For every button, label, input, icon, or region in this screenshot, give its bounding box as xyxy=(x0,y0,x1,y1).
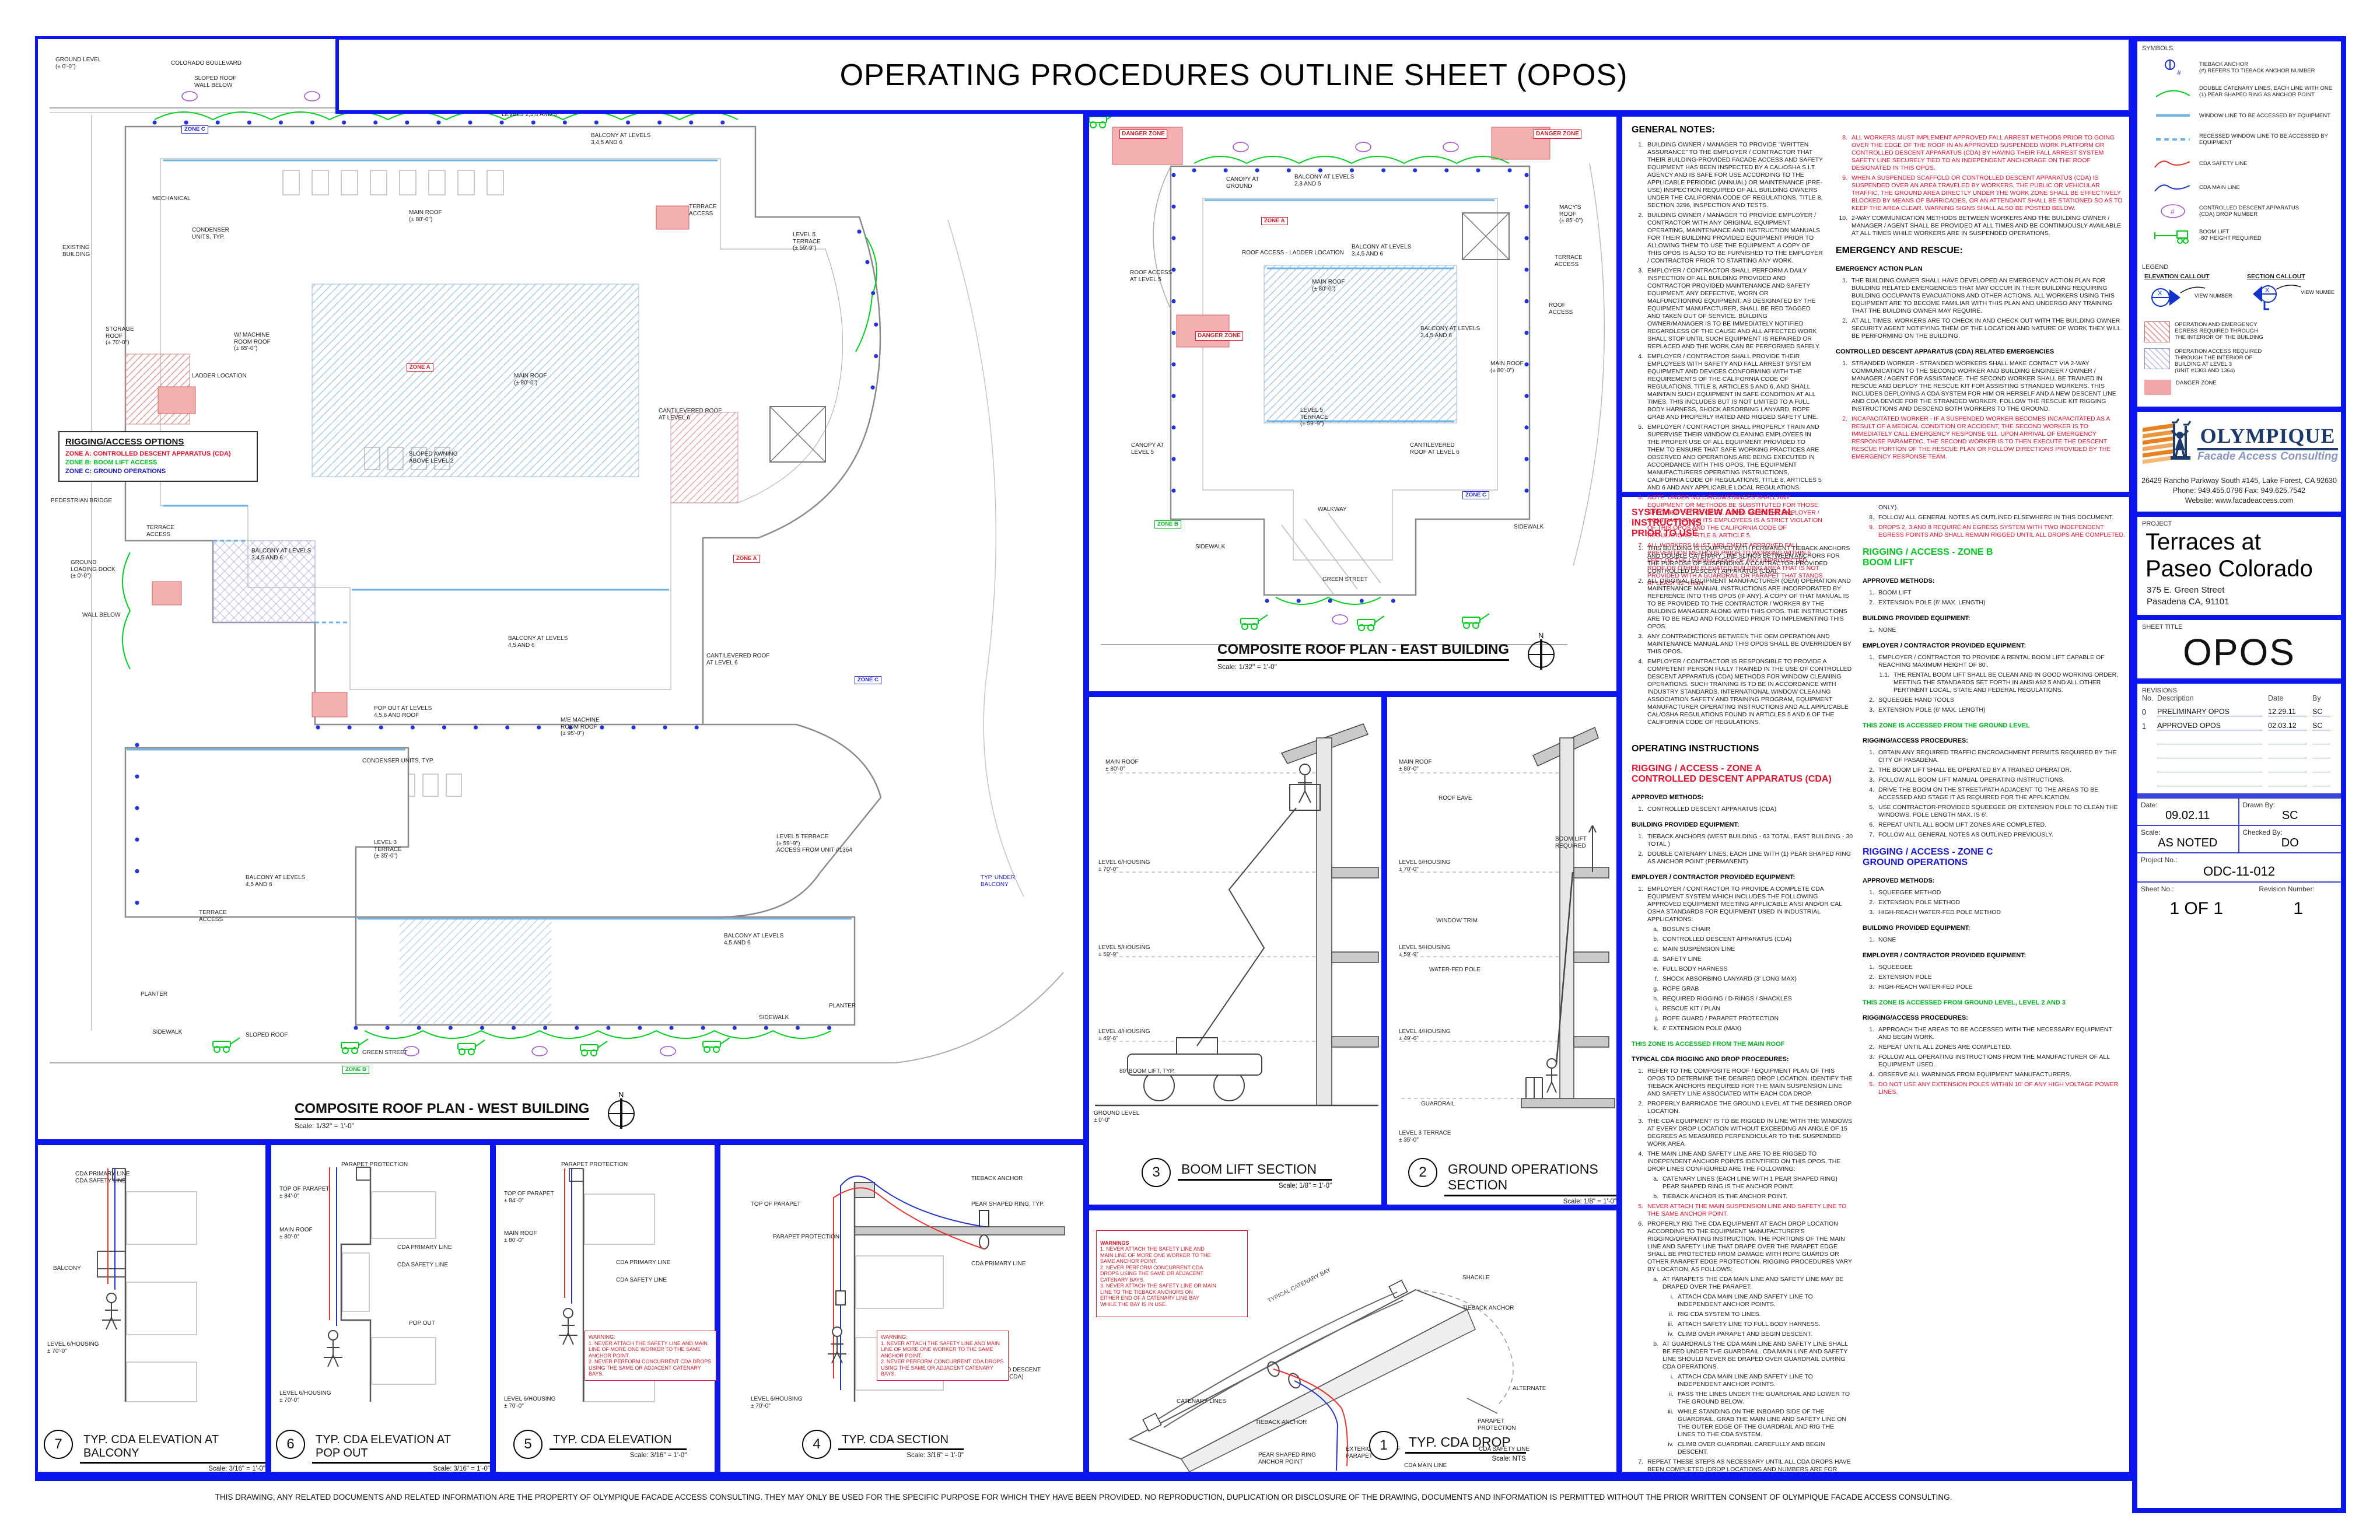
revision-no: 1 xyxy=(2142,722,2157,730)
plan-label: TIEBACK ANCHOR xyxy=(1462,1305,1514,1312)
svg-text:VIEW NUMBER: VIEW NUMBER xyxy=(2301,289,2334,295)
zone-c-approved-list: 1.SQUEEGEE METHOD2.EXTENSION POLE METHOD… xyxy=(1863,887,2126,919)
sidebar-divider xyxy=(2137,678,2341,684)
icon-red-hatch-icon xyxy=(2144,321,2170,342)
note-item: 1.THE BUILDING OWNER SHALL HAVE DEVELOPE… xyxy=(1836,277,2125,315)
emergency-action-list: 1.THE BUILDING OWNER SHALL HAVE DEVELOPE… xyxy=(1836,275,2125,342)
revision-no: 0 xyxy=(2142,708,2157,716)
note-item: ii.RIG CDA SYSTEM TO LINES. xyxy=(1662,1311,1853,1318)
plan-label: MAIN ROOF (± 80'-0") xyxy=(409,209,442,223)
plan-label: SLOPED AWNING ABOVE LEVEL 2 xyxy=(409,451,458,464)
zone-b-building-list: 1.NONE xyxy=(1863,624,2126,636)
plan-label: ROOF EAVE xyxy=(1438,795,1472,802)
typ-cda-elevation-panel: PARAPET PROTECTIONTOP OF PARAPET ± 84'-0… xyxy=(493,1142,717,1475)
revision-row: 0PRELIMINARY OPOS12.29.11SC xyxy=(2137,702,2341,716)
note-item: 2.DOUBLE CATENARY LINES, EACH LINE WITH … xyxy=(1632,850,1853,866)
title-block-sidebar: SYMBOLS #TIEBACK ANCHOR (#) REFERS TO TI… xyxy=(2132,36,2346,1513)
note-item: 3.HIGH-REACH WATER-FED POLE xyxy=(1863,984,2126,991)
checked-by-label: Checked By: xyxy=(2243,828,2283,836)
olympique-logo-icon xyxy=(2140,415,2194,471)
rev-col-date: Date xyxy=(2268,694,2306,702)
note-item: 1.EMPLOYER / CONTRACTOR TO PROVIDE A REN… xyxy=(1863,654,2126,669)
note-item: 1.SQUEEGEE xyxy=(1863,964,2126,971)
note-item: 3.THE CDA EQUIPMENT IS TO BE RIGGED IN L… xyxy=(1632,1118,1853,1148)
checked-by-value: DO xyxy=(2243,836,2338,850)
project-address-1: 375 E. Green Street xyxy=(2147,584,2341,596)
note-item: 1.EMPLOYER / CONTRACTOR TO PROVIDE A COM… xyxy=(1632,885,1853,923)
drawn-by-value: SC xyxy=(2243,809,2338,822)
east-roof-plan-drawing xyxy=(1089,117,1616,691)
note-item: 1.STRANDED WORKER - STRANDED WORKERS SHA… xyxy=(1836,360,2125,413)
note-item: b.TIEBACK ANCHOR IS THE ANCHOR POINT. xyxy=(1647,1193,1853,1200)
plan-label: LEVEL 6/HOUSING ± 70'-0" xyxy=(504,1396,556,1409)
symbol-row: RECESSED WINDOW LINE TO BE ACCESSED BY E… xyxy=(2152,129,2337,149)
note-item: f.SHOCK ABSORBING LANYARD (3' LONG MAX) xyxy=(1647,975,1853,983)
elevation-callout-group: ELEVATION CALLOUT X VIEW NUMBER xyxy=(2144,273,2232,316)
east-roof-plan-panel: DANGER ZONEDANGER ZONECANOPY AT GROUNDBA… xyxy=(1086,114,1619,694)
plan-label: LEVEL 6/HOUSING ± 70'-0" xyxy=(279,1390,331,1403)
note-item: 8.FOLLOW ALL GENERAL NOTES AS OUTLINED E… xyxy=(1863,514,2126,521)
plan-label: TIEBACK ANCHOR xyxy=(1255,1419,1307,1426)
rigging-access-options-box: RIGGING/ACCESS OPTIONS ZONE A: CONTROLLE… xyxy=(58,431,258,482)
cda-elevation-balcony-drawing xyxy=(38,1145,265,1419)
date-value: 09.02.11 xyxy=(2141,809,2235,822)
plan-label: ZONE A xyxy=(733,555,760,563)
symbol-label: CDA MAIN LINE xyxy=(2199,184,2240,191)
plan-label: LEVEL 4/HOUSING ± 49'-6" xyxy=(1098,1028,1150,1042)
legend-items: OPERATION AND EMERGENCY EGRESS REQUIRED … xyxy=(2144,321,2336,395)
zone-b-heading: RIGGING / ACCESS - ZONE B BOOM LIFT xyxy=(1863,547,2126,568)
boom-lift-icon xyxy=(2152,225,2193,245)
company-address: 26429 Rancho Parkway South #145, Lake Fo… xyxy=(2137,476,2341,486)
note-item: 9.WHEN A SUSPENDED SCAFFOLD OR CONTROLLE… xyxy=(1836,174,2125,212)
note-item: 2.REPEAT UNTIL ALL ZONES ARE COMPLETED. xyxy=(1863,1044,2126,1051)
plan-label: LEVEL 3 TERRACE ± 35'-0" xyxy=(1399,1130,1451,1143)
plan-label: LADDER LOCATION xyxy=(192,373,247,380)
plan-title-text: COMPOSITE ROOF PLAN - EAST BUILDING xyxy=(1217,642,1509,661)
view-number: 3 xyxy=(1142,1158,1171,1187)
system-overview-cont-list: ONLY).8.FOLLOW ALL GENERAL NOTES AS OUTL… xyxy=(1863,502,2126,541)
plan-label: CONDENSER UNITS, TYP. xyxy=(362,758,434,765)
system-overview-heading: SYSTEM OVERVIEW AND GENERAL INSTRUCTIONS… xyxy=(1632,508,1853,539)
project-no-value: ODC-11-012 xyxy=(2141,864,2337,879)
plan-label: TERRACE ACCESS xyxy=(689,204,717,217)
plan-label: BALCONY AT LEVELS 2,3 AND 5 xyxy=(1294,174,1354,187)
plan-label: 80' BOOM LIFT, TYP. xyxy=(1119,1068,1175,1075)
plan-label: TOP OF PARAPET ± 84'-0" xyxy=(504,1191,554,1204)
legend-item: OPERATION AND EMERGENCY EGRESS REQUIRED … xyxy=(2144,321,2336,342)
note-item: 2.INCAPACITATED WORKER - IF A SUSPENDED … xyxy=(1836,415,2125,461)
plan-label: CDA SAFETY LINE xyxy=(397,1262,448,1269)
plan-label: LEVEL 5/HOUSING ± 59'-9" xyxy=(1098,944,1150,958)
plan-label: BALCONY AT LEVELS 3,4,5 AND 6 xyxy=(1420,325,1480,339)
symbols-heading: SYMBOLS xyxy=(2137,41,2341,52)
plan-label: PARAPET PROTECTION xyxy=(773,1234,839,1241)
disclaimer-text: THIS DRAWING, ANY RELATED DOCUMENTS AND … xyxy=(215,1493,1952,1501)
plan-label: W/ MACHINE ROOM ROOF (± 85'-0") xyxy=(234,332,271,352)
legend-label: DANGER ZONE xyxy=(2176,380,2217,386)
symbol-label: CONTROLLED DESCENT APPARATUS (CDA) DROP … xyxy=(2199,205,2299,218)
svg-text:#: # xyxy=(2171,208,2175,216)
note-item: 2.BUILDING OWNER / MANAGER TO PROVIDE EM… xyxy=(1632,212,1824,265)
tieback-anchor-icon: # xyxy=(2152,58,2193,78)
note-item: 4.DRIVE THE BOOM ON THE STREET/PATH ADJA… xyxy=(1863,786,2126,801)
revisions-rows: 0PRELIMINARY OPOS12.29.11SC1APPROVED OPO… xyxy=(2137,702,2341,730)
note-item: 4.EMPLOYER / CONTRACTOR IS RESPONSIBLE T… xyxy=(1632,658,1853,726)
note-item: 3.ANY CONTRADICTIONS BETWEEN THE OEM OPE… xyxy=(1632,633,1853,656)
typ-cda-elevation-at-pop-out-panel: PARAPET PROTECTIONTOP OF PARAPET ± 84'-0… xyxy=(268,1142,493,1475)
plan-label: TOP OF PARAPET ± 84'-0" xyxy=(279,1186,330,1199)
typ-cda-elevation-at-balcony-panel: CDA PRIMARY LINE CDA SAFETY LINEBALCONYL… xyxy=(35,1142,268,1475)
plan-label: TOP OF PARAPET xyxy=(751,1201,801,1208)
rev-col-description: Description xyxy=(2157,694,2262,702)
elevation-callout-icon: X VIEW NUMBER xyxy=(2144,280,2232,313)
plan-label: GREEN STREET xyxy=(1322,576,1368,583)
company-website: Website: www.facadeaccess.com xyxy=(2137,496,2341,506)
plan-label: ZONE C xyxy=(855,676,881,684)
revision-by: SC xyxy=(2312,722,2330,730)
sheet-title-value: OPOS xyxy=(2137,631,2341,674)
plan-label: POP OUT xyxy=(409,1320,435,1327)
zone-a-access-note: THIS ZONE IS ACCESSED FROM THE MAIN ROOF xyxy=(1632,1041,1853,1048)
note-item: 3.FOLLOW ALL BOOM LIFT MANUAL OPERATING … xyxy=(1863,776,2126,784)
boom-lift-section-panel: MAIN ROOF ± 80'-0"LEVEL 6/HOUSING ± 70'-… xyxy=(1086,694,1384,1207)
warnings-heading: WARNINGS xyxy=(1100,1240,1129,1246)
plan-label: TERRACE ACCESS xyxy=(199,909,227,923)
typ-cda-drop-panel: TYPICAL CATENARY BAYSHACKLETIEBACK ANCHO… xyxy=(1086,1207,1619,1475)
typ-cda-section-panel: TIEBACK ANCHORPEAR SHAPED RING, TYP.TOP … xyxy=(717,1142,1086,1475)
plan-label: CANTILEVERED ROOF AT LEVEL 6 xyxy=(1410,442,1459,456)
title-band: OPERATING PROCEDURES OUTLINE SHEET (OPOS… xyxy=(335,36,2132,114)
note-item: iii.ATTACH SAFETY LINE TO FULL BODY HARN… xyxy=(1662,1321,1853,1328)
plan-label: DANGER ZONE xyxy=(1534,129,1581,139)
note-item: 2.ALL ORIGINAL EQUIPMENT MANUFACTURER (O… xyxy=(1632,577,1853,631)
view-title-4: 4 TYP. CDA SECTIONScale: 3/16" = 1'-0" xyxy=(802,1430,964,1459)
plan-label: ROOF ACCESS xyxy=(1549,302,1573,316)
note-item: 1.1.THE RENTAL BOOM LIFT SHALL BE CLEAN … xyxy=(1878,671,2126,694)
note-item: 5.USE CONTRACTOR-PROVIDED SQUEEGEE OR EX… xyxy=(1863,804,2126,819)
zone-a-approved-label: APPROVED METHODS: xyxy=(1632,794,1853,801)
plan-label: ROOF ACCESS - LADDER LOCATION xyxy=(1242,250,1344,257)
view-title-text: TYP. CDA ELEVATION AT BALCONY xyxy=(80,1430,265,1464)
plan-label: TYP. UNDER BALCONY xyxy=(981,874,1015,888)
view-scale-text: Scale: 3/16" = 1'-0" xyxy=(80,1464,265,1472)
plan-label: CDA SAFETY LINE xyxy=(616,1277,667,1284)
view-title-3: 3 BOOM LIFT SECTIONScale: 1/8" = 1'-0" xyxy=(1142,1158,1332,1189)
plan-label: WALL BELOW xyxy=(82,612,120,619)
plan-label: EXISTING BUILDING xyxy=(62,244,90,258)
plan-label: PARAPET PROTECTION xyxy=(341,1161,408,1168)
view-scale-text: Scale: 3/16" = 1'-0" xyxy=(838,1450,964,1459)
plan-label: LEVEL 4/HOUSING ± 49'-6" xyxy=(1399,1028,1451,1042)
plan-label: LEVEL 6/HOUSING ± 70'-0" xyxy=(751,1396,803,1409)
zone-a-heading: RIGGING / ACCESS - ZONE A CONTROLLED DES… xyxy=(1632,764,1853,785)
plan-label: SIDEWALK xyxy=(152,1029,182,1036)
svg-text:#: # xyxy=(2177,69,2181,77)
note-item: a.BOSUN'S CHAIR xyxy=(1647,926,1853,933)
plan-label: SIDEWALK xyxy=(759,1014,789,1021)
svg-text:X: X xyxy=(2158,290,2162,297)
plan-label: CANTILEVERED ROOF AT LEVEL 6 xyxy=(659,408,722,421)
note-item: i.ATTACH CDA MAIN LINE AND SAFETY LINE T… xyxy=(1662,1373,1853,1388)
plan-label: WALKWAY xyxy=(1318,506,1347,513)
view-title-text: TYP. CDA DROP xyxy=(1405,1431,1526,1454)
general-notes-heading: GENERAL NOTES: xyxy=(1632,125,1824,135)
scale-label: Scale: xyxy=(2141,828,2160,836)
view-number: 4 xyxy=(802,1430,831,1459)
zone-b-approved-label: APPROVED METHODS: xyxy=(1863,577,2126,584)
symbol-label: CDA SAFETY LINE xyxy=(2199,160,2248,167)
note-item: 1.THIS BUILDING IS EQUIPPED WITH PERMANE… xyxy=(1632,545,1853,575)
north-arrow-icon: N xyxy=(1524,630,1558,671)
plan-label: STORAGE ROOF (± 70'-0") xyxy=(106,326,134,346)
company-logo-block: OLYMPIQUE Facade Access Consulting 26429… xyxy=(2137,412,2341,506)
note-item: 9.DROPS 2, 3 AND 8 REQUIRE AN EGRESS SYS… xyxy=(1863,524,2126,539)
company-tagline: Facade Access Consulting xyxy=(2197,450,2338,463)
view-number: 5 xyxy=(513,1430,542,1459)
plan-scale-text: Scale: 1/32" = 1'-0" xyxy=(295,1120,589,1130)
plan-label: WINDOW TRIM xyxy=(1436,918,1478,925)
section-callout-icon: X VIEW NUMBER xyxy=(2247,280,2334,313)
west-roof-plan-panel: COLORADO BOULEVARDGROUND LEVEL (± 0'-0")… xyxy=(35,36,1086,1142)
cda-safety-line-icon xyxy=(2152,153,2193,173)
plan-label: SLOPED ROOF WALL BELOW xyxy=(194,75,236,89)
plan-label: BALCONY xyxy=(53,1265,81,1272)
cda-emergencies-heading: CONTROLLED DESCENT APPARATUS (CDA) RELAT… xyxy=(1836,348,2125,355)
note-item: 2.EXTENSION POLE (6' MAX. LENGTH) xyxy=(1863,599,2126,607)
project-name: Terraces at Paseo Colorado xyxy=(2137,527,2341,584)
view-scale-text: Scale: 3/16" = 1'-0" xyxy=(549,1450,687,1459)
plan-label: ALTERNATE xyxy=(1513,1385,1546,1392)
plan-label: TIEBACK ANCHOR xyxy=(971,1175,1023,1182)
plan-label: PLANTER xyxy=(829,1003,856,1010)
sheet-title-label: SHEET TITLE xyxy=(2137,620,2341,631)
symbol-label: BOOM LIFT -80' HEIGHT REQUIRED xyxy=(2199,229,2262,242)
zone-c-access-note: THIS ZONE IS ACCESSED FROM GROUND LEVEL,… xyxy=(1863,999,2126,1006)
zone-b-procedures-list: 1.OBTAIN ANY REQUIRED TRAFFIC ENCROACHME… xyxy=(1863,747,2126,841)
note-item: 2.EXTENSION POLE xyxy=(1863,974,2126,981)
plan-label: ZONE C xyxy=(1462,491,1489,499)
note-item: 1.NONE xyxy=(1863,936,2126,944)
view-title-text: TYP. CDA ELEVATION xyxy=(549,1430,687,1450)
plan-label: DANGER ZONE xyxy=(1195,331,1243,341)
note-item: 4.OBSERVE ALL WARNINGS FROM EQUIPMENT MA… xyxy=(1863,1071,2126,1079)
general-notes-list-2: 8.ALL WORKERS MUST IMPLEMENT APPROVED FA… xyxy=(1836,132,2125,240)
note-item: iv.CLIMB OVER GUARDRAIL CAREFULLY AND BE… xyxy=(1662,1441,1853,1456)
view-number: 7 xyxy=(44,1430,73,1459)
note-item: i.RESCUE KIT / PLAN xyxy=(1647,1005,1853,1013)
zone-b-employer-list: 1.EMPLOYER / CONTRACTOR TO PROVIDE A REN… xyxy=(1863,652,2126,716)
note-item: 1.OBTAIN ANY REQUIRED TRAFFIC ENCROACHME… xyxy=(1863,749,2126,764)
project-address-2: Pasadena CA, 91101 xyxy=(2147,596,2341,608)
plan-label: PEAR SHAPED RING, TYP. xyxy=(971,1201,1044,1208)
view-scale-text: Scale: 3/16" = 1'-0" xyxy=(312,1464,490,1472)
plan-label: SLOPED ROOF xyxy=(246,1032,288,1039)
note-item: 1.APPROACH THE AREAS TO BE ACCESSED WITH… xyxy=(1863,1026,2126,1041)
note-item: 3.EMPLOYER / CONTRACTOR SHALL PERFORM A … xyxy=(1632,267,1824,351)
zone-a-approved-list: 1.CONTROLLED DESCENT APPARATUS (CDA) xyxy=(1632,803,1853,815)
revisions-header: No. Description Date By xyxy=(2137,694,2341,702)
cda-drop-warnings-box: WARNINGS 1. NEVER ATTACH THE SAFETY LINE… xyxy=(1096,1230,1248,1317)
legend-heading: LEGEND xyxy=(2137,260,2341,271)
project-no-label: Project No.: xyxy=(2141,856,2178,864)
zone-c-heading: RIGGING / ACCESS - ZONE C GROUND OPERATI… xyxy=(1863,847,2126,868)
plan-label: PEDESTRIAN BRIDGE xyxy=(51,498,112,505)
revisions-label: REVISIONS xyxy=(2137,684,2341,694)
plan-label: BALCONY AT LEVELS 4,5 AND 6 xyxy=(246,874,305,888)
note-item: h.REQUIRED RIGGING / D-RINGS / SHACKLES xyxy=(1647,995,1853,1003)
plan-label: MAIN ROOF (± 80'-0") xyxy=(514,373,547,386)
plan-label: CDA PRIMARY LINE xyxy=(971,1261,1026,1268)
revision-empty-row xyxy=(2137,730,2341,744)
section-callout-label: SECTION CALLOUT xyxy=(2247,273,2334,280)
zone-c-procedures-list: 1.APPROACH THE AREAS TO BE ACCESSED WITH… xyxy=(1863,1024,2126,1098)
note-item: k.6' EXTENSION POLE (MAX) xyxy=(1647,1025,1853,1032)
notes-panel: GENERAL NOTES: 1.BUILDING OWNER / MANAGE… xyxy=(1619,114,2132,1475)
revision-by: SC xyxy=(2312,708,2330,716)
note-item: 3.EXTENSION POLE (6' MAX. LENGTH) xyxy=(1863,706,2126,714)
note-item: 4.EMPLOYER / CONTRACTOR SHALL PROVIDE TH… xyxy=(1632,353,1824,421)
plan-label: MAIN ROOF ± 80'-0" xyxy=(1399,759,1432,772)
view-title-7: 7 TYP. CDA ELEVATION AT BALCONYScale: 3/… xyxy=(44,1430,265,1472)
svg-text:VIEW NUMBER: VIEW NUMBER xyxy=(2194,293,2232,299)
view-title-text: TYP. CDA SECTION xyxy=(838,1430,964,1450)
cda-section-warning-box: WARNING: 1. NEVER ATTACH THE SAFETY LINE… xyxy=(877,1331,1009,1381)
sidebar-divider xyxy=(2137,615,2341,620)
note-item: 1.CONTROLLED DESCENT APPARATUS (CDA) xyxy=(1632,806,1853,813)
rigging-options-list: ZONE A: CONTROLLED DESCENT APPARATUS (CD… xyxy=(65,450,251,476)
plan-label: M/E MACHINE ROOM ROOF (± 95'-0") xyxy=(561,717,600,737)
revision-empty-row xyxy=(2137,772,2341,786)
plan-label: LEVEL 6/HOUSING ± 70'-0" xyxy=(1098,859,1150,873)
symbols-list: #TIEBACK ANCHOR (#) REFERS TO TIEBACK AN… xyxy=(2137,52,2341,245)
revision-number-value: 1 xyxy=(2259,899,2337,919)
view-title-1: 1 TYP. CDA DROPScale: NTS xyxy=(1369,1431,1526,1462)
zone-c-employer-label: EMPLOYER / CONTRACTOR PROVIDED EQUIPMENT… xyxy=(1863,952,2126,959)
plan-label: CDA PRIMARY LINE xyxy=(616,1259,671,1266)
north-arrow-icon: N xyxy=(604,1089,638,1130)
note-item: 5.NEVER ATTACH THE MAIN SUSPENSION LINE … xyxy=(1632,1203,1853,1218)
plan-label: BALCONY AT LEVELS 4,5 AND 6 xyxy=(508,635,568,649)
note-item: 1.SQUEEGEE METHOD xyxy=(1863,889,2126,897)
legend-item: DANGER ZONE xyxy=(2144,380,2336,395)
view-title-5: 5 TYP. CDA ELEVATIONScale: 3/16" = 1'-0" xyxy=(513,1430,687,1459)
revision-date: 02.03.12 xyxy=(2268,722,2306,730)
sheet-no-value: 1 OF 1 xyxy=(2141,899,2252,919)
symbol-row: #CONTROLLED DESCENT APPARATUS (CDA) DROP… xyxy=(2152,201,2337,221)
system-overview-column: SYSTEM OVERVIEW AND GENERAL INSTRUCTIONS… xyxy=(1632,502,1853,1483)
rigging-zone-option: ZONE B: BOOM LIFT ACCESS xyxy=(65,459,251,467)
plan-label: COLORADO BOULEVARD xyxy=(171,60,242,67)
plan-label: ZONE B xyxy=(342,1066,369,1074)
note-item: iii.WHILE STANDING ON THE INBOARD SIDE O… xyxy=(1662,1408,1853,1438)
warnings-text: 1. NEVER ATTACH THE SAFETY LINE AND MAIN… xyxy=(1100,1246,1244,1307)
catenary-line-icon xyxy=(2152,82,2193,101)
system-overview-list: 1.THIS BUILDING IS EQUIPPED WITH PERMANE… xyxy=(1632,542,1853,729)
zone-c-procedures-label: RIGGING/ACCESS PROCEDURES: xyxy=(1863,1014,2126,1021)
plan-label: CDA PRIMARY LINE xyxy=(397,1244,452,1251)
icon-blue-hatch-icon xyxy=(2144,348,2170,369)
revision-empty-row xyxy=(2137,744,2341,758)
note-item: 1.REFER TO THE COMPOSITE ROOF / EQUIPMEN… xyxy=(1632,1067,1853,1098)
view-number: 1 xyxy=(1369,1431,1398,1460)
note-item: ONLY). xyxy=(1863,504,2126,512)
symbol-row: DOUBLE CATENARY LINES, EACH LINE WITH ON… xyxy=(2152,82,2337,101)
plan-label: PEAR SHAPED RING ANCHOR POINT xyxy=(1258,1452,1316,1465)
plan-label: DANGER ZONE xyxy=(1119,129,1167,139)
view-title-text: GROUND OPERATIONS SECTION xyxy=(1444,1158,1616,1196)
recessed-window-line-icon xyxy=(2152,129,2193,149)
plan-label: BALCONY AT LEVELS 3,4,5 AND 6 xyxy=(591,132,650,146)
plan-label: ZONE C xyxy=(181,125,208,134)
view-title-text: TYP. CDA ELEVATION AT POP OUT xyxy=(312,1430,490,1464)
plan-label: MAIN ROOF ± 80'-0" xyxy=(279,1227,313,1240)
plan-label: BALCONY AT LEVELS 4,5 AND 6 xyxy=(724,933,783,946)
cda-emergencies-list: 1.STRANDED WORKER - STRANDED WORKERS SHA… xyxy=(1836,358,2125,463)
zone-a-building-list: 1.TIEBACK ANCHORS (WEST BUILDING - 63 TO… xyxy=(1632,831,1853,868)
plan-label: GROUND LEVEL ± 0'-0" xyxy=(1094,1110,1139,1123)
plan-label: ZONE A xyxy=(407,363,433,372)
plan-label: POP OUT AT LEVELS 4,5,6 AND ROOF xyxy=(374,705,432,719)
plan-label: BALCONY AT LEVELS 3,4,5 AND 6 xyxy=(251,548,311,561)
zone-a-employer-label: EMPLOYER / CONTRACTOR PROVIDED EQUIPMENT… xyxy=(1632,874,1853,881)
operating-instructions-heading: OPERATING INSTRUCTIONS xyxy=(1632,744,1853,754)
plan-label: CANOPY AT LEVEL 5 xyxy=(1131,442,1164,456)
zone-c-approved-label: APPROVED METHODS: xyxy=(1863,877,2126,884)
emergency-heading: EMERGENCY AND RESCUE: xyxy=(1836,246,2125,256)
symbol-row: CDA MAIN LINE xyxy=(2152,177,2337,197)
zone-a-building-label: BUILDING PROVIDED EQUIPMENT: xyxy=(1632,821,1853,828)
cda-elevation-warning-box: WARNING: 1. NEVER ATTACH THE SAFETY LINE… xyxy=(584,1331,716,1381)
view-number: 2 xyxy=(1408,1158,1437,1187)
plan-label: GROUND LEVEL (± 0'-0") xyxy=(55,57,101,70)
svg-text:N: N xyxy=(1538,631,1543,640)
note-item: a.CATENARY LINES (EACH LINE WITH 1 PEAR … xyxy=(1647,1175,1853,1191)
note-item: 2.EXTENSION POLE METHOD xyxy=(1863,899,2126,907)
window-line-icon xyxy=(2152,106,2193,125)
cda-procedures-list: 1.REFER TO THE COMPOSITE ROOF / EQUIPMEN… xyxy=(1632,1065,1853,1483)
emergency-action-plan-heading: EMERGENCY ACTION PLAN xyxy=(1836,265,2125,272)
plan-label: SIDEWALK xyxy=(1514,524,1543,531)
revision-description: PRELIMINARY OPOS xyxy=(2157,708,2262,716)
sidebar-divider xyxy=(2137,512,2341,517)
note-item: e.FULL BODY HARNESS xyxy=(1647,965,1853,973)
plan-label: MECHANICAL xyxy=(152,195,191,202)
plan-label: MAIN ROOF ± 80'-0" xyxy=(504,1230,537,1244)
note-item: 5.EMPLOYER / CONTRACTOR SHALL PROPERLY T… xyxy=(1632,423,1824,492)
zone-b-access-note: THIS ZONE IS ACCESSED FROM THE GROUND LE… xyxy=(1863,722,2126,729)
sheet-title: OPERATING PROCEDURES OUTLINE SHEET (OPOS… xyxy=(840,58,1628,93)
zone-b-c-column: ONLY).8.FOLLOW ALL GENERAL NOTES AS OUTL… xyxy=(1863,502,2126,1098)
west-plan-title: COMPOSITE ROOF PLAN - WEST BUILDING Scal… xyxy=(295,1089,638,1130)
plan-label: TERRACE ACCESS xyxy=(1555,254,1583,268)
note-item: 1.BUILDING OWNER / MANAGER TO PROVIDE "W… xyxy=(1632,141,1824,209)
plan-scale-text: Scale: 1/32" = 1'-0" xyxy=(1217,661,1509,671)
revision-number-label: Revision Number: xyxy=(2259,885,2314,893)
plan-label: LEVEL 3 TERRACE (± 35'-0") xyxy=(374,839,402,860)
legend-content: ELEVATION CALLOUT X VIEW NUMBER SECTION … xyxy=(2137,271,2341,395)
elevation-callout-label: ELEVATION CALLOUT xyxy=(2144,273,2232,280)
plan-label: BOOM LIFT REQUIRED xyxy=(1555,836,1587,849)
plan-label: SIDEWALK xyxy=(1195,544,1225,551)
sidebar-divider xyxy=(2137,407,2341,412)
cda-drop-number-icon: # xyxy=(2152,201,2193,221)
symbol-label: TIEBACK ANCHOR (#) REFERS TO TIEBACK ANC… xyxy=(2199,61,2315,74)
plan-label: SHACKLE xyxy=(1462,1275,1490,1282)
view-scale-text: Scale: NTS xyxy=(1405,1454,1526,1462)
note-item: b.AT GUARDRAILS THE CDA MAIN LINE AND SA… xyxy=(1647,1340,1853,1371)
zone-b-procedures-label: RIGGING/ACCESS PROCEDURES: xyxy=(1863,737,2126,744)
